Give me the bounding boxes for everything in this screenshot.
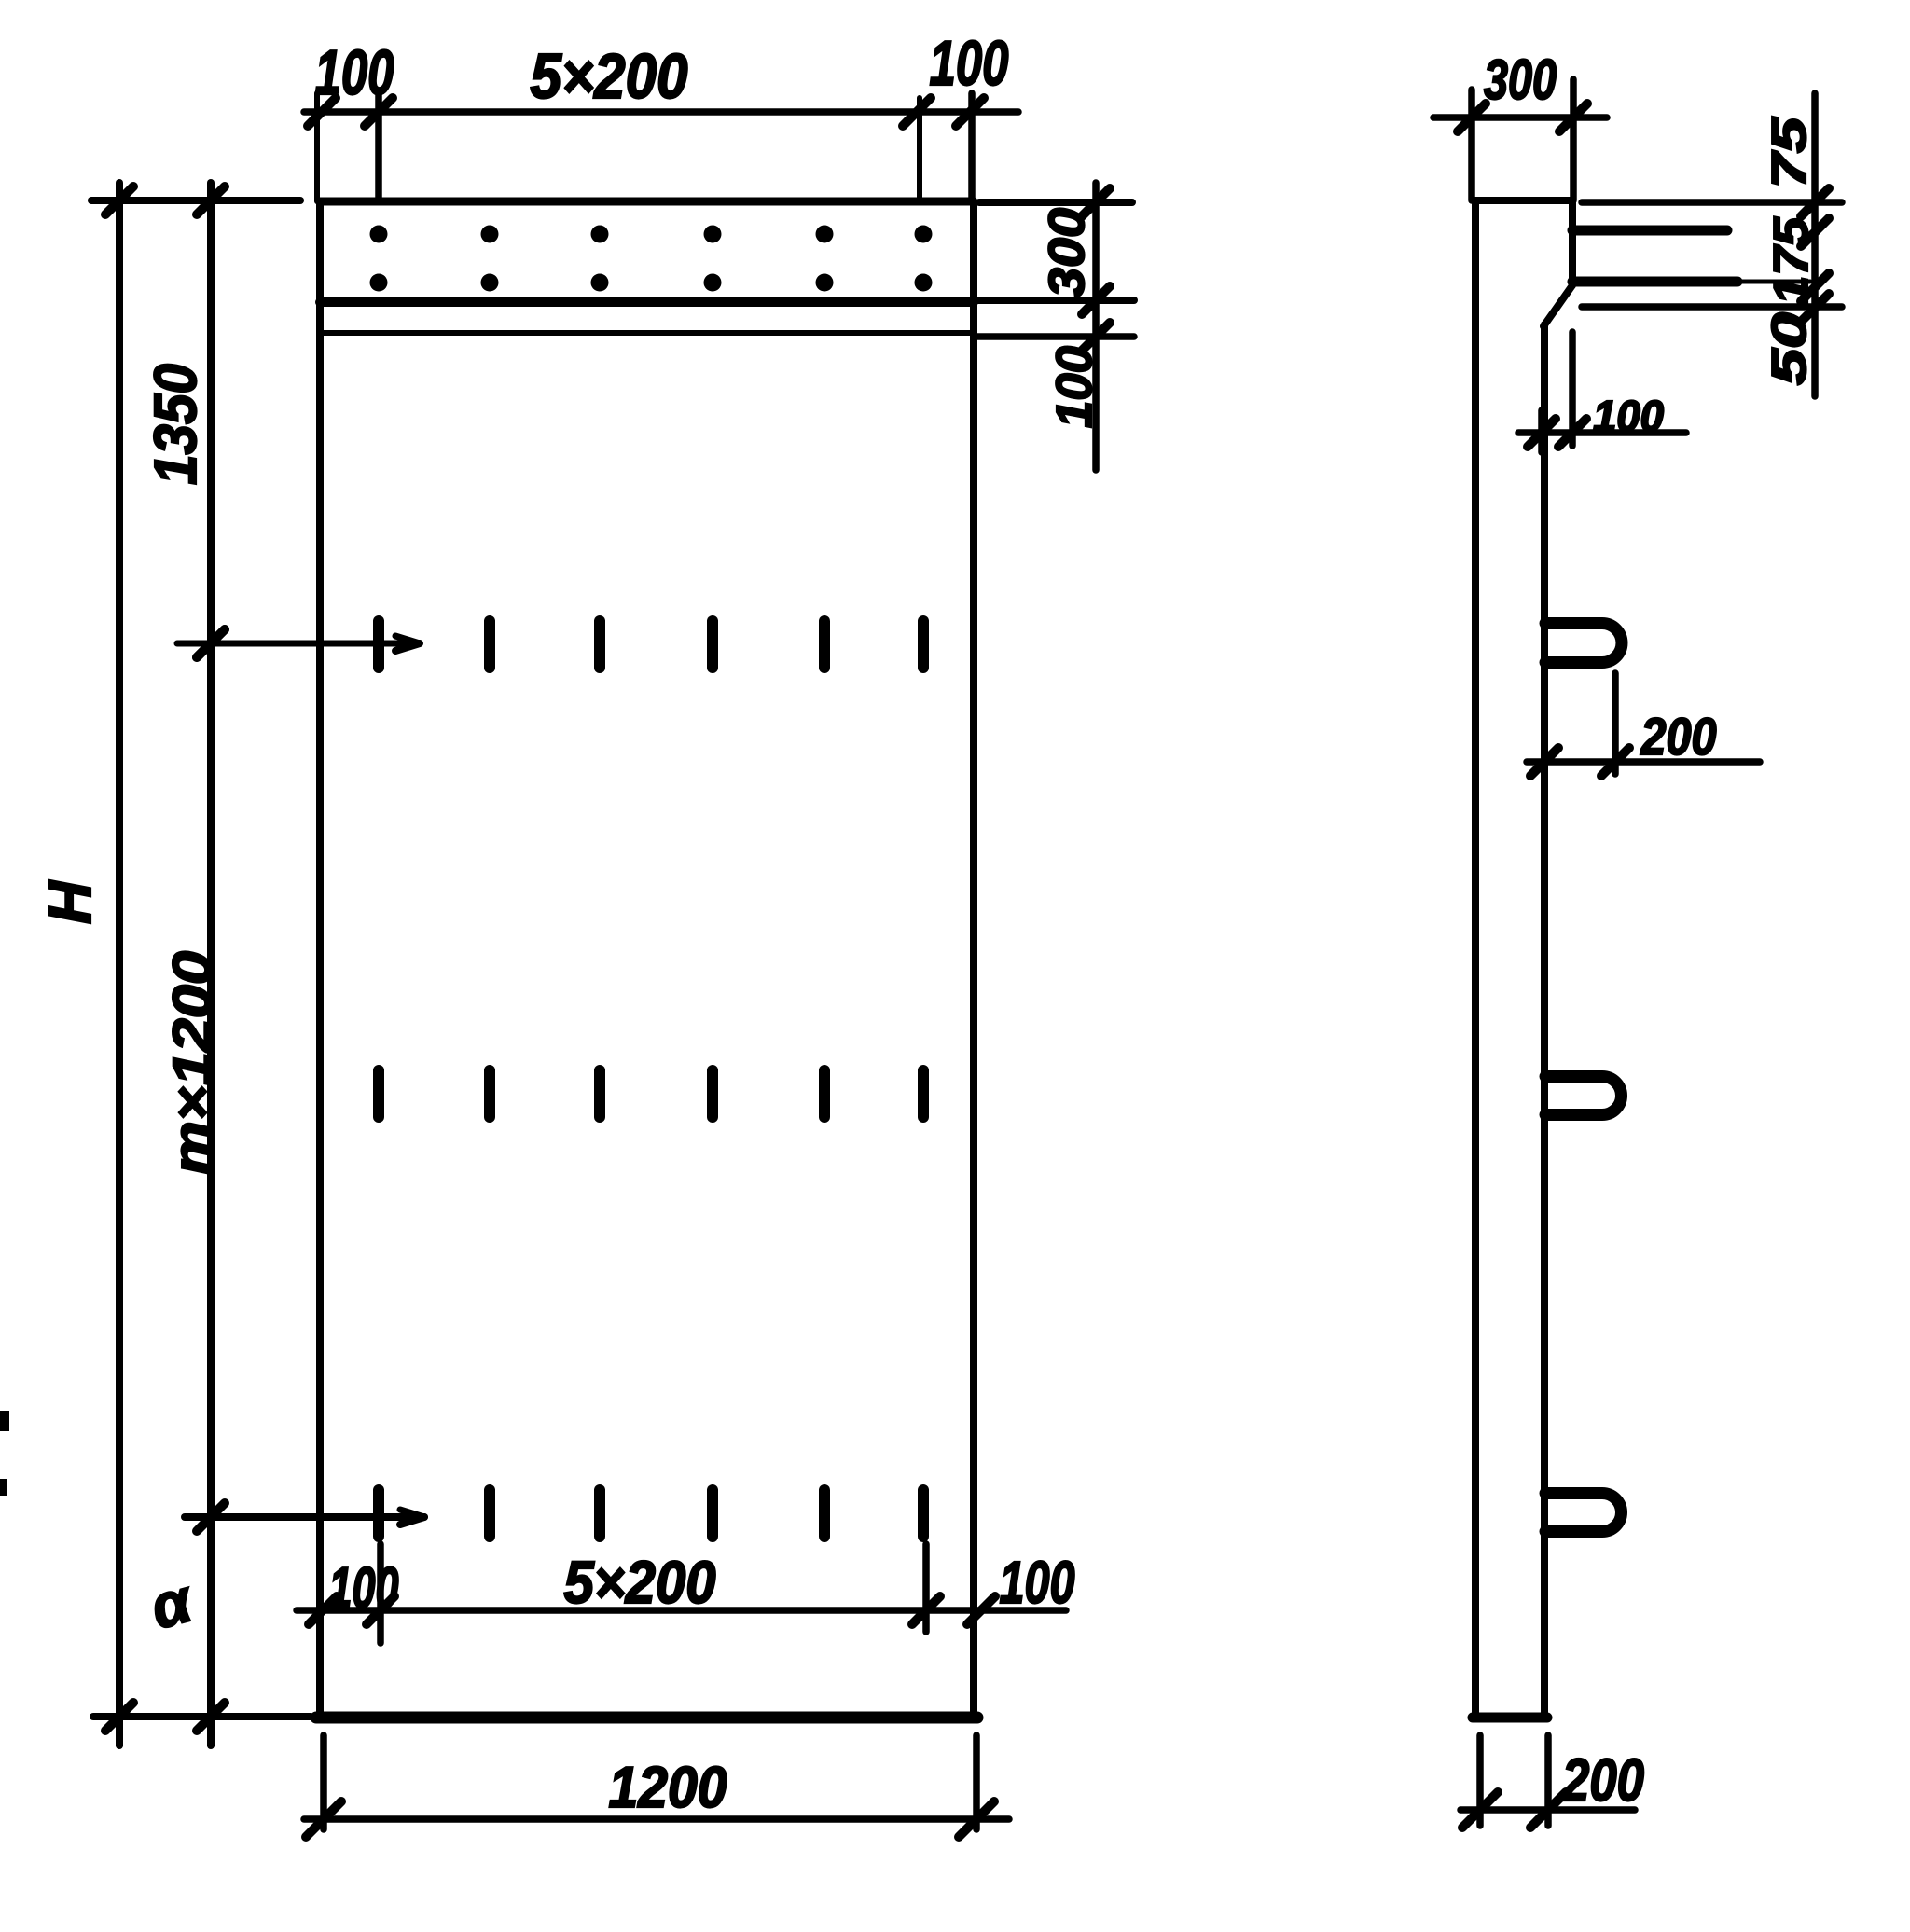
svg-text:5×200: 5×200 <box>564 1549 716 1616</box>
svg-text:300: 300 <box>1039 208 1095 297</box>
svg-text:100: 100 <box>315 37 394 108</box>
svg-text:300: 300 <box>1484 48 1557 111</box>
svg-text:100: 100 <box>1593 392 1664 440</box>
svg-text:5×200: 5×200 <box>531 41 688 112</box>
svg-text:100: 100 <box>329 1556 399 1621</box>
svg-text:100: 100 <box>930 28 1009 99</box>
svg-text:1350: 1350 <box>142 364 209 485</box>
svg-text:175: 175 <box>1765 216 1819 305</box>
svg-text:200: 200 <box>1561 1746 1644 1814</box>
svg-text:m×1200: m×1200 <box>162 951 223 1175</box>
svg-text:75: 75 <box>1763 117 1817 188</box>
svg-text:200: 200 <box>1640 707 1717 766</box>
svg-text:50: 50 <box>1763 312 1817 385</box>
svg-text:100: 100 <box>1046 346 1102 428</box>
svg-text:100: 100 <box>1000 1549 1075 1616</box>
svg-text:H: H <box>36 879 104 924</box>
svg-text:1200: 1200 <box>609 1756 727 1820</box>
